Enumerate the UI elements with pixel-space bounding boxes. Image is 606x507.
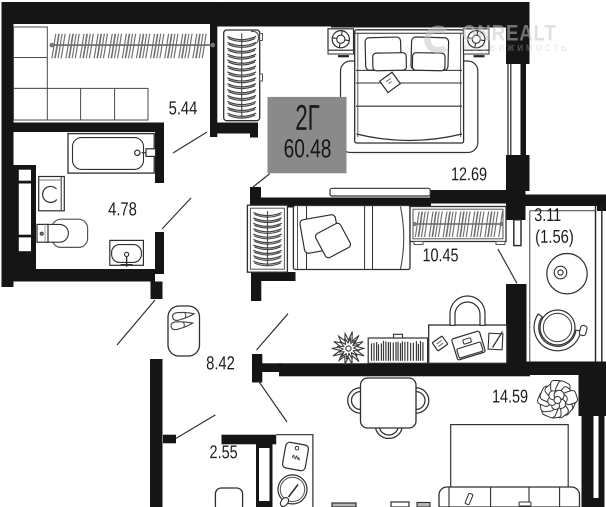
svg-text:14.59: 14.59	[492, 386, 528, 407]
svg-text:12.69: 12.69	[451, 164, 487, 185]
svg-text:3.11: 3.11	[534, 204, 561, 225]
svg-text:НЕДВИЖИМОСТЬ: НЕДВИЖИМОСТЬ	[464, 43, 570, 54]
svg-text:10.45: 10.45	[422, 245, 458, 266]
svg-text:60.48: 60.48	[284, 133, 332, 163]
svg-text:8.42: 8.42	[206, 353, 235, 374]
svg-text:5.44: 5.44	[169, 98, 198, 119]
svg-text:4.78: 4.78	[108, 199, 137, 220]
svg-text:(1.56): (1.56)	[535, 226, 574, 247]
svg-text:2.55: 2.55	[210, 441, 238, 462]
